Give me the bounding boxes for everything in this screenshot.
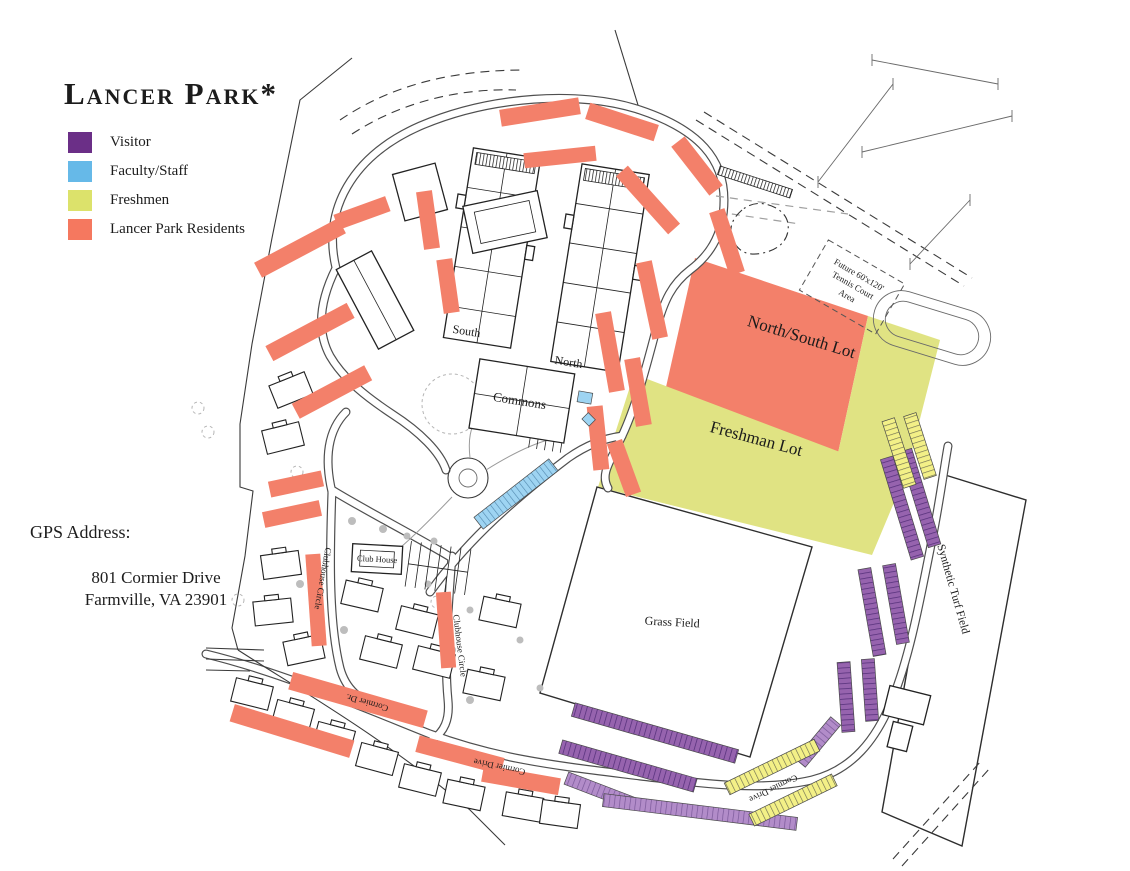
house xyxy=(252,593,293,626)
legend-item-visitor: Visitor xyxy=(68,132,245,153)
parking-strip xyxy=(837,662,855,733)
parking-strip xyxy=(858,568,886,657)
building-nw-a xyxy=(336,251,414,349)
roundabout xyxy=(448,458,488,498)
parking-strip xyxy=(577,391,593,404)
gps-address-block: GPS Address: 801 Cormier Drive Farmville… xyxy=(30,522,236,612)
legend-item-faculty-staff: Faculty/Staff xyxy=(68,161,245,182)
legend-item-freshmen: Freshmen xyxy=(68,190,245,211)
hatched-strip xyxy=(717,166,792,198)
legend-label: Freshmen xyxy=(110,192,169,209)
legend-item-residents: Lancer Park Residents xyxy=(68,219,245,240)
grass-field-label: Grass Field xyxy=(644,614,700,631)
page-title: Lancer Park* xyxy=(64,76,278,112)
parking-strip xyxy=(262,500,322,528)
house xyxy=(540,795,582,829)
visitor-swatch xyxy=(68,132,92,153)
house xyxy=(356,738,400,776)
faculty-staff-swatch xyxy=(68,161,92,182)
legend-label: Faculty/Staff xyxy=(110,163,188,180)
gps-line1: 801 Cormier Drive xyxy=(76,567,236,589)
residents-swatch xyxy=(68,219,92,240)
gps-heading: GPS Address: xyxy=(30,522,236,543)
legend-label: Visitor xyxy=(110,134,151,151)
house xyxy=(443,774,486,810)
house xyxy=(260,546,302,580)
survey-lines xyxy=(818,54,1012,270)
house xyxy=(479,591,522,627)
legend: Visitor Faculty/Staff Freshmen Lancer Pa… xyxy=(68,132,245,248)
house xyxy=(463,664,506,700)
club-house-label: Club House xyxy=(357,553,398,565)
house xyxy=(341,575,385,612)
legend-label: Lancer Park Residents xyxy=(110,221,245,238)
parking-strip xyxy=(265,303,354,361)
gps-lines: 801 Cormier Drive Farmville, VA 23901 xyxy=(76,567,236,612)
pond-outline xyxy=(731,203,788,254)
north-hall-label: North xyxy=(554,353,584,371)
parking-strip xyxy=(883,563,910,644)
parking-strip xyxy=(268,471,324,498)
house xyxy=(360,631,404,668)
house xyxy=(260,417,304,454)
house xyxy=(399,759,443,796)
parking-strip xyxy=(861,659,878,722)
campus-map-canvas: Future 60'x120' Tennis Court Area North/… xyxy=(0,0,1130,871)
house xyxy=(231,673,275,710)
lancer-park-parking-map: Future 60'x120' Tennis Court Area North/… xyxy=(0,0,1130,871)
freshmen-swatch xyxy=(68,190,92,211)
house xyxy=(502,787,544,822)
gps-line2: Farmville, VA 23901 xyxy=(76,589,236,611)
